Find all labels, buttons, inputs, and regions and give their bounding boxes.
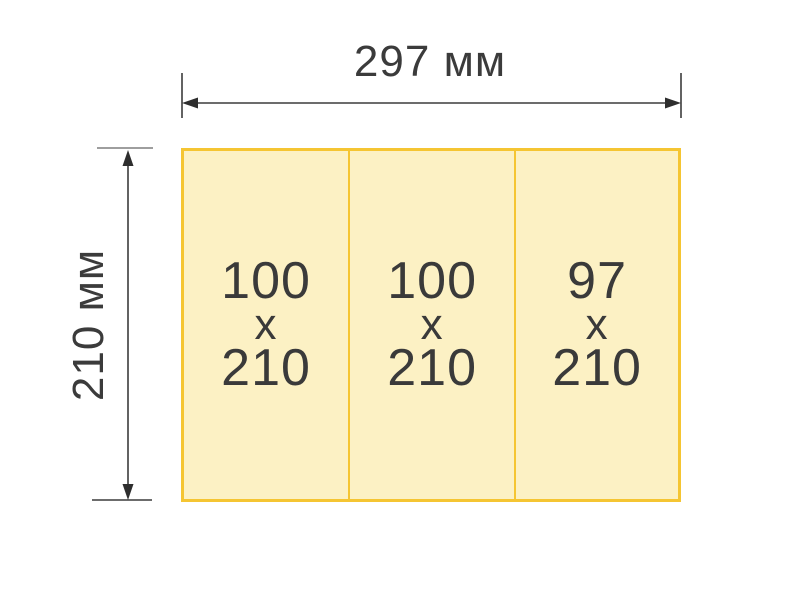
fold-panel-2: 100 x 210 (350, 151, 516, 499)
height-dimension-label: 210 мм (64, 249, 114, 401)
height-arrowhead-bottom-icon (123, 484, 134, 500)
width-arrowhead-left-icon (182, 98, 198, 109)
paper-sheet: 100 x 210 100 x 210 97 x 210 (181, 148, 681, 502)
panel-3-height-value: 210 (552, 346, 642, 391)
panel-2-height-value: 210 (387, 346, 477, 391)
panel-2-width-value: 100 (387, 259, 477, 304)
width-arrowhead-right-icon (665, 98, 681, 109)
fold-panel-1: 100 x 210 (184, 151, 350, 499)
panel-1-height-value: 210 (221, 346, 311, 391)
diagram-canvas: 297 мм 210 мм 100 x 210 100 x 210 97 x 2… (0, 0, 800, 600)
height-arrowhead-top-icon (123, 150, 134, 166)
panel-3-width-value: 97 (567, 259, 627, 304)
width-dimension-label: 297 мм (354, 37, 506, 87)
fold-panel-3: 97 x 210 (516, 151, 678, 499)
panel-1-width-value: 100 (221, 259, 311, 304)
